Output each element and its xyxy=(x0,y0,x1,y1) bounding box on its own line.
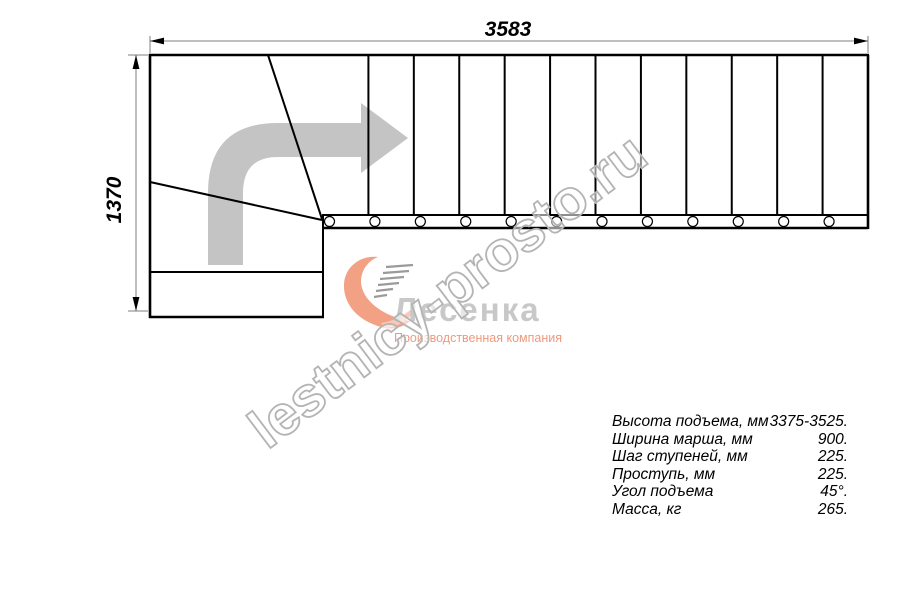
spec-label: Угол подъема xyxy=(612,483,713,501)
dim-arrow-down-icon xyxy=(133,297,140,311)
baluster-circle xyxy=(688,217,698,227)
spec-value: 225. xyxy=(818,448,848,466)
baluster-circle xyxy=(415,217,425,227)
spec-label: Ширина марша, мм xyxy=(612,431,753,449)
baluster-circle xyxy=(370,217,380,227)
spec-label: Высота подъема, мм xyxy=(612,413,769,431)
baluster-circle xyxy=(733,217,743,227)
baluster-circle xyxy=(824,217,834,227)
step-divider-lines xyxy=(368,55,822,215)
dimension-top: 3583 xyxy=(150,18,868,53)
spec-row-step-pitch: Шаг ступеней, мм 225. xyxy=(612,448,848,466)
baluster-circle xyxy=(642,217,652,227)
dimension-left: 1370 xyxy=(103,55,148,311)
spec-row-tread: Проступь, мм 225. xyxy=(612,466,848,484)
spec-value: 900. xyxy=(818,431,848,449)
baluster-circle xyxy=(325,217,335,227)
baluster-circle xyxy=(552,217,562,227)
spec-value: 225. xyxy=(818,466,848,484)
spec-value: 265. xyxy=(818,501,848,519)
logo: Лесенка Производственная компания xyxy=(340,254,570,350)
logo-tagline: Производственная компания xyxy=(394,331,562,345)
dimension-left-value: 1370 xyxy=(103,176,126,223)
spec-row-march-width: Ширина марша, мм 900. xyxy=(612,431,848,449)
baluster-circle xyxy=(461,217,471,227)
dimension-top-value: 3583 xyxy=(485,18,532,41)
spec-label: Шаг ступеней, мм xyxy=(612,448,748,466)
spec-value: 45°. xyxy=(820,483,848,501)
spec-value: 3375-3525. xyxy=(770,413,848,431)
spec-row-angle: Угол подъема 45°. xyxy=(612,483,848,501)
technical-drawing-canvas: 3583 1370 Лесенка Производст xyxy=(0,0,900,600)
spec-label: Масса, кг xyxy=(612,501,681,519)
logo-company-name: Лесенка xyxy=(394,291,541,329)
spec-table: Высота подъема, мм 3375-3525. Ширина мар… xyxy=(612,413,848,519)
dim-arrow-right-icon xyxy=(854,38,868,45)
spec-label: Проступь, мм xyxy=(612,466,715,484)
baluster-circle xyxy=(779,217,789,227)
spec-row-height: Высота подъема, мм 3375-3525. xyxy=(612,413,848,431)
spec-row-mass: Масса, кг 265. xyxy=(612,501,848,519)
baluster-circle xyxy=(597,217,607,227)
baluster-circles xyxy=(325,217,835,227)
dim-arrow-left-icon xyxy=(150,38,164,45)
dim-arrow-up-icon xyxy=(133,55,140,69)
baluster-circle xyxy=(506,217,516,227)
direction-arrow-icon xyxy=(208,103,408,265)
